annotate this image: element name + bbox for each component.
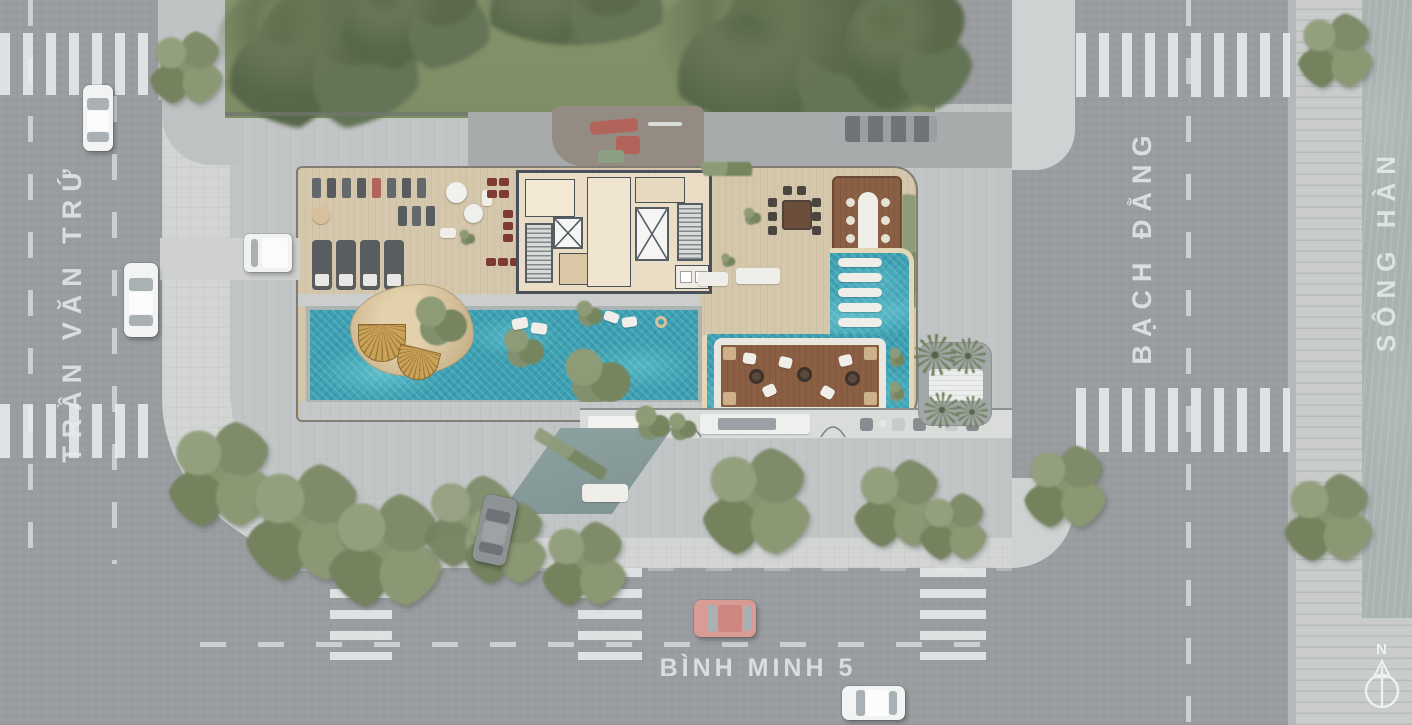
stairwell bbox=[677, 203, 703, 261]
dining-chair bbox=[783, 186, 792, 195]
chair bbox=[846, 234, 855, 243]
car-white bbox=[124, 263, 158, 337]
van-white bbox=[244, 234, 292, 272]
play-equipment bbox=[598, 150, 624, 163]
hedge bbox=[690, 162, 760, 176]
gym-equipment bbox=[402, 178, 411, 198]
pool-deck-strip bbox=[298, 294, 700, 306]
facade-bush bbox=[666, 410, 698, 442]
dining-table bbox=[782, 200, 812, 230]
cafe-stool bbox=[892, 418, 905, 431]
elevator-shaft bbox=[553, 217, 583, 249]
dining-chair bbox=[812, 198, 821, 207]
car-windshield bbox=[129, 278, 153, 291]
cafe-stool bbox=[860, 418, 873, 431]
plaza-tree bbox=[918, 492, 988, 562]
rooftop-units bbox=[845, 116, 937, 142]
red-lounger bbox=[503, 234, 513, 242]
float-lounger bbox=[621, 316, 637, 328]
core-room bbox=[525, 179, 575, 217]
red-lounger bbox=[499, 178, 509, 186]
van-windshield bbox=[251, 239, 258, 267]
gym-area bbox=[306, 172, 446, 232]
dining-chair bbox=[797, 186, 806, 195]
bbq-counter bbox=[736, 268, 780, 284]
gym-equipment bbox=[417, 178, 426, 198]
entry-awning bbox=[700, 414, 810, 434]
crosswalk-left-top bbox=[0, 33, 158, 95]
lounge-sofa bbox=[440, 228, 456, 238]
chair bbox=[881, 216, 890, 225]
dining-chair bbox=[768, 226, 777, 235]
car-roof bbox=[87, 111, 109, 131]
deck-post bbox=[723, 347, 736, 360]
chair bbox=[881, 234, 890, 243]
gym-equipment bbox=[312, 178, 321, 198]
armchair bbox=[819, 384, 836, 400]
bbq-counter bbox=[698, 272, 728, 286]
daybed-cushion bbox=[315, 274, 329, 286]
pool-bush bbox=[410, 292, 470, 348]
daybed-cushion bbox=[363, 274, 377, 286]
armchair bbox=[742, 352, 756, 365]
gym-equipment bbox=[387, 178, 396, 198]
building-core bbox=[516, 170, 712, 294]
round-table bbox=[749, 369, 764, 384]
daybed bbox=[312, 240, 332, 290]
cafe-table bbox=[879, 420, 886, 427]
door-swing-icon bbox=[820, 424, 846, 438]
daybed bbox=[384, 240, 404, 290]
in-pool-lounger bbox=[838, 288, 882, 297]
parasol bbox=[446, 182, 467, 203]
elevator-shaft bbox=[635, 207, 669, 261]
gym-equipment bbox=[398, 206, 407, 226]
car-roof bbox=[129, 292, 153, 314]
corridor bbox=[587, 177, 631, 287]
lane-dash-right-road bbox=[1186, 0, 1191, 725]
float-lounger bbox=[530, 322, 547, 335]
north-compass: N bbox=[1356, 642, 1408, 718]
red-lounger bbox=[503, 222, 513, 230]
pool-planter bbox=[890, 378, 904, 404]
red-lounger bbox=[487, 190, 497, 198]
crosswalk-right-top bbox=[1076, 33, 1290, 97]
car-windshield bbox=[87, 98, 109, 110]
river-label-song-han: SÔNG HÀN bbox=[1368, 120, 1404, 380]
gym-equipment bbox=[342, 178, 351, 198]
car-rear-window bbox=[87, 132, 109, 142]
pool-bush bbox=[556, 346, 636, 406]
dining-chair bbox=[812, 212, 821, 221]
deck-post bbox=[864, 347, 877, 360]
red-lounger bbox=[498, 258, 508, 266]
round-table bbox=[845, 371, 860, 386]
gym-equipment bbox=[426, 206, 435, 226]
in-pool-lounger bbox=[838, 273, 882, 282]
sunken-lounge-deck bbox=[714, 338, 886, 414]
car-roof bbox=[866, 690, 888, 716]
site-plan-canvas: TRẦN VĂN TRỨ BẠCH ĐẰNG SÔNG HÀN BÌNH MIN… bbox=[0, 0, 1412, 725]
car-rear-window bbox=[743, 606, 751, 631]
plaza-tree bbox=[540, 520, 628, 608]
deck-post bbox=[723, 392, 736, 405]
armchair bbox=[778, 356, 793, 370]
daybed-cushion bbox=[387, 274, 401, 286]
gym-equipment bbox=[327, 178, 336, 198]
street-label-binh-minh-5: BÌNH MINH 5 bbox=[608, 650, 908, 686]
planter-bush bbox=[720, 252, 736, 268]
fixture bbox=[680, 271, 692, 283]
daybed bbox=[360, 240, 380, 290]
van-cargo-roof bbox=[262, 238, 288, 268]
street-label-tran-van-tru: TRẦN VĂN TRỨ bbox=[54, 132, 90, 492]
palm-tree bbox=[924, 392, 960, 428]
sidewalk-corner-top-right bbox=[1012, 0, 1075, 170]
daybed-cushion bbox=[339, 274, 353, 286]
street-label-bach-dang: BẠCH ĐẰNG bbox=[1124, 96, 1160, 396]
dining-set bbox=[766, 184, 822, 242]
red-lounger bbox=[499, 190, 509, 198]
armchair bbox=[838, 354, 853, 368]
round-table bbox=[797, 367, 812, 382]
palm-tree bbox=[950, 338, 986, 374]
dining-chair bbox=[812, 226, 821, 235]
plaza-tree bbox=[700, 446, 812, 558]
gym-equipment-red bbox=[372, 178, 381, 198]
in-pool-lounger bbox=[838, 303, 882, 312]
round-table bbox=[312, 206, 330, 224]
promenade-tree bbox=[1282, 472, 1374, 564]
awning-glass bbox=[718, 418, 776, 430]
red-lounger bbox=[503, 210, 513, 218]
planter-bush bbox=[742, 206, 762, 226]
riverside-promenade bbox=[1296, 0, 1364, 725]
car-windshield bbox=[707, 605, 717, 632]
car-windshield bbox=[856, 690, 865, 716]
car-red bbox=[694, 600, 756, 637]
car-white bbox=[842, 686, 905, 720]
red-lounger bbox=[486, 258, 496, 266]
chair bbox=[846, 198, 855, 207]
crosswalk-bottom-3 bbox=[920, 568, 986, 660]
in-pool-lounger bbox=[838, 318, 882, 327]
crosswalk-right-mid bbox=[1076, 388, 1290, 452]
parasol bbox=[464, 204, 483, 223]
in-pool-lounger bbox=[838, 258, 882, 267]
playground bbox=[552, 106, 704, 166]
core-room bbox=[635, 177, 685, 203]
gym-equipment bbox=[412, 206, 421, 226]
dining-chair bbox=[768, 198, 777, 207]
plaza-tree bbox=[1022, 444, 1108, 530]
compass-north-label: N bbox=[1356, 642, 1408, 658]
red-lounger bbox=[487, 178, 497, 186]
stairwell bbox=[525, 223, 553, 283]
planter-bush bbox=[458, 228, 476, 246]
pool-bush bbox=[574, 298, 604, 328]
street-tree bbox=[148, 30, 224, 106]
plaza-bench bbox=[582, 484, 628, 502]
pool-planter bbox=[890, 344, 904, 370]
deck-post bbox=[864, 392, 877, 405]
daybed bbox=[336, 240, 356, 290]
promenade-tree bbox=[1296, 12, 1374, 90]
armchair bbox=[761, 383, 777, 398]
car-roof bbox=[718, 605, 742, 632]
palm-tree bbox=[956, 396, 988, 428]
float-ring bbox=[655, 316, 667, 328]
car-rear-window bbox=[889, 691, 897, 715]
chair bbox=[881, 198, 890, 207]
play-equipment bbox=[648, 122, 682, 126]
chair bbox=[846, 216, 855, 225]
dining-chair bbox=[768, 212, 777, 221]
north-arrow-icon bbox=[1359, 658, 1405, 712]
lane-dash-left-road-2 bbox=[112, 96, 117, 564]
gym-equipment bbox=[357, 178, 366, 198]
play-equipment-slide bbox=[590, 118, 639, 135]
car-rear-window bbox=[129, 315, 153, 326]
